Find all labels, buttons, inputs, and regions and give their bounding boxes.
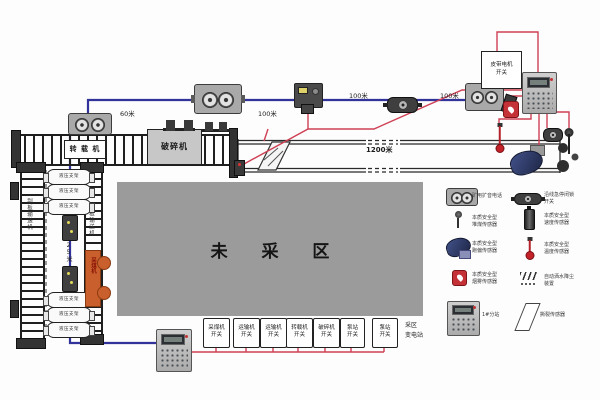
hydraulic-support: 液压支架 (46, 169, 92, 185)
distance-label: 100米 (440, 90, 459, 100)
panel-screen-icon (161, 334, 185, 345)
spray-icon (520, 272, 537, 280)
indicator-icon (238, 163, 241, 166)
legend-label: 矿用扩音电话 (472, 193, 502, 200)
cable-connector (301, 104, 314, 114)
legend-deviation-base (459, 250, 471, 259)
legend-substation-icon (447, 301, 480, 336)
panel-keys-icon (526, 91, 553, 110)
district-substation-note: 采区 变电站 (405, 321, 423, 341)
crusher-box: 破碎机 (147, 129, 202, 165)
legend-coal-pile-sensor-icon (453, 211, 463, 229)
afc-left-label: 刮板输送机 (25, 198, 33, 231)
belt-clamp-icon (205, 122, 213, 131)
legend-speed-sensor-icon (524, 209, 535, 230)
panel-keys-icon (451, 317, 476, 333)
panel-screen-icon (452, 305, 474, 314)
unmined-area: 未 采 区 (117, 182, 423, 316)
face-distance-label: 25米 (64, 242, 73, 262)
mount-tab (241, 95, 245, 103)
panel-indicator-icon (473, 306, 476, 309)
legend-label: 撕裂传感器 (540, 312, 565, 319)
mount-tab (191, 95, 195, 103)
belt-length-label: 1200米 (366, 145, 392, 155)
legend-sprinkler-icon (520, 272, 537, 286)
coal-pile-sensor-device (564, 128, 574, 154)
distance-label: 100米 (258, 108, 277, 118)
belt-head-sensor (234, 160, 245, 176)
belt-motor-switch-box: 皮带电机 开关 (481, 51, 522, 89)
sensor-hub-icon (550, 132, 557, 139)
face-methane-sensor (62, 266, 78, 292)
indicator-icon (70, 281, 73, 284)
legend-emergency-stop-icon (514, 193, 542, 205)
sensor-bulb (495, 144, 504, 153)
afc-end-cap (16, 338, 46, 349)
cable-stub (383, 103, 388, 107)
switch-box: 泵站开关 (372, 318, 398, 348)
afc-conveyor-left (20, 168, 45, 340)
belt-drum-icon (557, 160, 569, 172)
legend-label: 本质安全型烟雾传感器 (472, 272, 497, 285)
temperature-sensor-device (495, 123, 504, 153)
afc-side-bracket (10, 182, 19, 200)
emergency-stop-switch-device (387, 97, 418, 113)
legend-label: 本质安全型速度传感器 (544, 213, 569, 226)
speaker-icon (91, 118, 105, 132)
belt-clamp-icon (219, 122, 227, 131)
hydraulic-support: 液压支架 (46, 307, 92, 323)
panel-screen-icon (527, 77, 550, 88)
hydraulic-support: 液压支架 (46, 322, 92, 338)
indicator-icon (67, 221, 70, 224)
legend-label: 自动洒水降尘装置 (544, 274, 574, 287)
device-knob-icon (312, 88, 319, 95)
afc-side-bracket (10, 300, 19, 318)
sensor-bulb (525, 251, 534, 260)
legend-label: 本质安全型堆煤传感器 (472, 215, 497, 228)
distance-label: 100米 (349, 90, 368, 100)
sensor-stem (457, 218, 460, 228)
unmined-area-label: 未 采 区 (197, 237, 344, 262)
flame-icon (455, 273, 463, 281)
voice-phone-device (194, 84, 242, 114)
transfer-machine-label: 转 载 机 (64, 140, 106, 159)
legend-smoke-sensor-icon (452, 270, 467, 286)
switch-box: 运输机开关 (233, 318, 260, 348)
legend-label: 1#分站 (482, 312, 499, 319)
panel-indicator-icon (185, 335, 188, 338)
speaker-icon (202, 92, 218, 108)
legend-label: 本质安全型跑偏传感器 (472, 241, 497, 254)
switch-box: 转载机开关 (286, 318, 313, 348)
speed-sensor-device (543, 128, 563, 142)
speaker-icon (218, 92, 234, 108)
cable-stub (417, 103, 422, 107)
sensor-ball-icon (455, 211, 462, 218)
switch-box: 运输机开关 (260, 318, 287, 348)
shearer-drum-icon (97, 286, 111, 300)
legend-temperature-sensor-icon (525, 237, 534, 260)
switch-box: 采煤机开关 (203, 318, 230, 348)
speaker-icon (471, 91, 484, 104)
afc-end-cap (16, 162, 46, 173)
switch-hub-icon (525, 196, 532, 203)
cable-stub (511, 197, 515, 201)
tear-sensor-on-belt-icon (258, 142, 290, 170)
speaker-icon (75, 118, 89, 132)
hydraulic-support: 液压支架 (46, 199, 92, 215)
sensor-stem (568, 134, 570, 154)
smoke-sensor-device (503, 101, 519, 118)
panel-indicator-icon (550, 78, 553, 81)
face-methane-sensor (62, 215, 78, 241)
mine-monitoring-diagram: 转 载 机 破碎机 60米 100米 100米 100米 1200米 皮带电机 … (0, 0, 600, 400)
hydraulic-support: 液压支架 (46, 184, 92, 200)
sensor-cap (527, 206, 531, 210)
switch-hub-icon (398, 101, 407, 110)
indicator-icon (67, 272, 70, 275)
shearer-label: 采煤机 (89, 257, 97, 274)
legend-label: 沿线急停闭锁开关 (544, 192, 574, 205)
switch-box: 破碎机开关 (313, 318, 340, 348)
legend-label: 本质安全型温度传感器 (544, 242, 569, 255)
droplets-icon (520, 282, 537, 286)
flame-icon (507, 105, 515, 113)
belt-clamp-icon (184, 120, 193, 131)
voice-phone-device (68, 113, 112, 135)
face-substation-panel (156, 329, 192, 372)
indicator-icon (70, 230, 73, 233)
distance-label: 60米 (120, 108, 135, 118)
belt-roller-icon (572, 154, 579, 161)
belt-clamp-icon (166, 120, 175, 131)
switch-box: 泵站开关 (340, 318, 365, 348)
speaker-icon (485, 91, 498, 104)
panel-keys-icon (160, 348, 188, 367)
device-screen-icon (298, 87, 308, 94)
monitoring-substation-panel (522, 72, 557, 114)
shearer-drum-icon (97, 256, 111, 270)
